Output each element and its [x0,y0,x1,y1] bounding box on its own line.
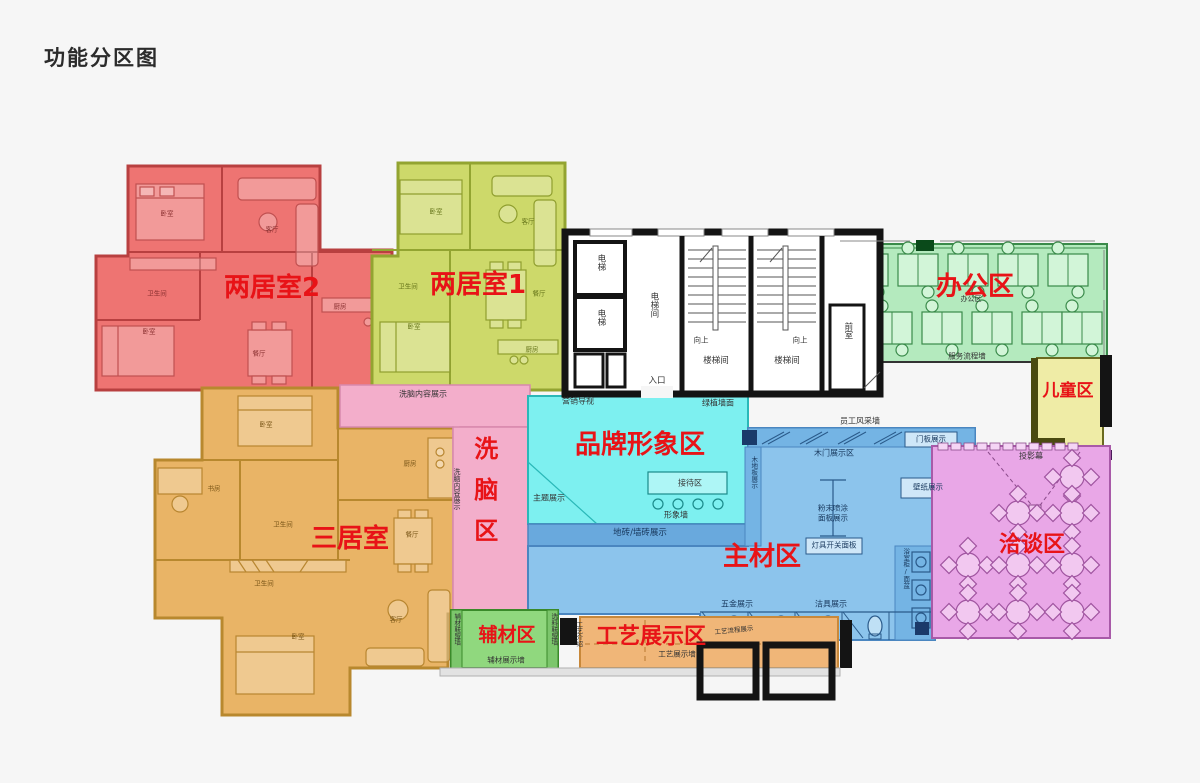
front-room [830,305,864,390]
room-bath: 卫生间 [147,290,167,297]
label-office-small: 办公区 [961,295,982,303]
label-door-panel: 门板展示 [916,436,946,445]
room-dining: 餐厅 [406,531,419,538]
zone-threebed [155,388,455,715]
wall [1100,355,1112,427]
label-powder-line2: 面板展示 [818,515,848,524]
label-up-2: 向上 [793,337,808,346]
window-row [938,443,1078,450]
zone-label-aux: 辅材区 [478,625,535,647]
room-dining: 餐厅 [533,290,546,297]
label-aux-left-wall: 辅材联盟墙 [452,613,459,646]
label-staff-wall: 员工风采墙 [840,416,880,425]
room-bedroom: 卧室 [161,210,174,217]
core-area [565,229,880,398]
floor-plan-canvas: 功能分区图 [0,0,1200,783]
pillar [915,622,929,635]
label-elevator-hall: 电梯间 [648,292,658,318]
floor-plan-drawing [0,0,1200,783]
label-stairwell-2: 楼梯间 [774,357,800,367]
label-theme-display: 主题展示 [533,493,565,502]
room-kitchen: 厨房 [334,303,347,310]
room-bedroom: 卧室 [430,208,443,215]
room-kitchen: 厨房 [404,460,417,467]
room-bedroom: 卧室 [143,328,156,335]
label-elevator-1: 电梯 [595,254,605,271]
label-brainwash-display-top: 洗脑内容展示 [399,389,447,398]
room-bedroom: 卧室 [292,633,305,640]
label-stairwell-1: 楼梯间 [703,357,729,367]
label-projector-screen: 投影幕 [1019,451,1043,460]
room-living: 客厅 [266,226,279,233]
label-image-wall: 形象墙 [664,510,688,519]
label-elevator-2: 电梯 [595,309,605,326]
zone-label-main: 主材区 [723,543,801,573]
label-bath-cabinet: 浴室柜/面盆 [901,548,908,589]
zone-label-threebed: 三居室 [311,525,389,555]
room-bath: 卫生间 [254,580,274,587]
label-switch-panel: 灯具开关面板 [812,542,857,551]
label-powder-line1: 粉末喷涂 [818,505,848,514]
zone-label-twobed1: 两居室1 [430,271,526,301]
zone-label-brainwash: 洗脑区 [469,436,497,559]
label-wallpaper: 壁纸展示 [913,484,943,493]
room-bedroom: 卧室 [408,323,421,330]
zone-label-negotiation: 洽谈区 [999,532,1065,557]
column-block [916,240,934,251]
label-front-room: 前室 [842,322,852,339]
room-study: 书房 [208,485,221,492]
label-aux-right-wall: 选料联盟墙 [549,613,556,646]
label-craft-wall: 工艺展示墙 [658,651,696,660]
zone-label-twobed2: 两居室2 [224,274,320,304]
label-wood-door-area: 木门展示区 [814,448,854,457]
wall [840,620,852,668]
label-tile-display: 地砖/墙砖展示 [613,529,667,539]
label-entrance: 入口 [648,377,665,387]
room-bath: 卫生间 [398,283,418,290]
room-kitchen: 厨房 [526,346,539,353]
label-craft-intro: 工艺介绍 [574,621,581,647]
zone-label-craft: 工艺展示区 [596,624,706,649]
zone-label-brand: 品牌形象区 [575,431,705,461]
label-service-wall: 服务流程墙 [948,353,986,362]
room-bath: 卫生间 [273,521,293,528]
balcony-edge [440,668,840,676]
label-reception: 接待区 [678,478,702,487]
label-hardware: 五金展示 [721,599,753,608]
label-marketing-sign: 营销导视 [562,396,594,405]
entrance-gap [641,386,673,398]
label-sanitary: 洁具展示 [815,599,847,608]
zone-label-kids: 儿童区 [1043,382,1094,402]
label-up-1: 向上 [694,337,709,346]
room-living: 客厅 [522,218,535,225]
label-aux-bottom-wall: 辅材展示墙 [487,657,525,666]
room-living: 客厅 [390,616,403,623]
room-dining: 餐厅 [253,350,266,357]
label-wood-floor: 木地板展示 [749,456,756,489]
pillar [742,430,757,445]
label-brainwash-display-side: 洗脑内容展示 [453,468,461,510]
room-bedroom: 卧室 [260,421,273,428]
label-green-wall: 绿植墙面 [702,398,734,407]
